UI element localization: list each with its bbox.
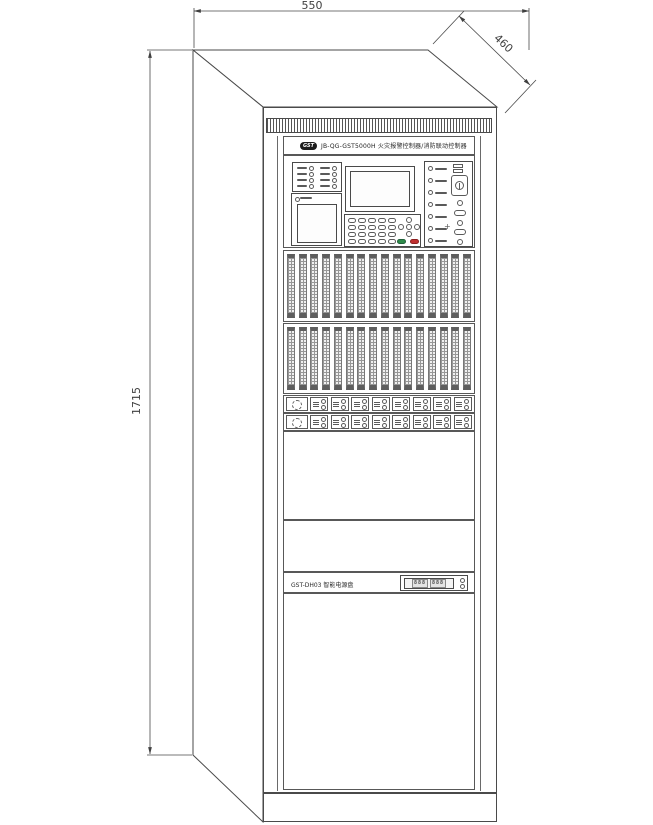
relay-terminal-lines — [333, 420, 339, 425]
led-dot — [309, 184, 314, 189]
enter-button — [406, 224, 412, 230]
terminal-strip — [428, 327, 436, 390]
depth-dimension-label: 460 — [491, 32, 515, 56]
led-label-bar — [435, 216, 447, 218]
lcd-frame — [345, 166, 415, 212]
loop-card-module — [357, 327, 377, 390]
arrow-right-button — [414, 224, 420, 230]
loop-card-module — [381, 254, 401, 318]
printer-slot — [453, 164, 463, 168]
power-display-window: 888 888 — [404, 578, 454, 589]
terminal-strip — [463, 254, 471, 318]
led-label-bar — [320, 185, 330, 187]
cabinet-technical-drawing: 550 460 1715 GST JB-QG-GST5000H 火灾报警控制器/… — [0, 0, 653, 825]
loop-card-module — [451, 327, 471, 390]
terminal-strip — [287, 327, 295, 390]
extension-line — [505, 80, 536, 113]
led-indicator-cell — [320, 166, 337, 170]
terminal-strip — [463, 327, 471, 390]
blank-panel-upper — [283, 431, 475, 520]
arrow-up-button — [406, 217, 412, 223]
keypad-grid — [348, 218, 396, 244]
led-indicator-cell — [297, 172, 314, 176]
keypad-key — [358, 232, 366, 237]
sounder-icon — [292, 418, 302, 428]
relay-module — [433, 397, 451, 411]
reset-button — [457, 220, 463, 226]
led-dot — [428, 202, 433, 207]
terminal-strip — [334, 254, 342, 318]
keypad-key — [388, 239, 396, 244]
relay-module — [310, 415, 328, 429]
terminal-strip — [451, 254, 459, 318]
led-dot — [332, 184, 337, 189]
loop-card-module — [357, 254, 377, 318]
terminal-strip — [299, 254, 307, 318]
mute-button — [457, 200, 463, 206]
keypad-key — [388, 218, 396, 223]
status-led-row — [428, 238, 447, 243]
relay-led-pair — [464, 417, 469, 428]
relay-terminal-lines — [395, 420, 401, 425]
loop-card-module — [428, 327, 448, 390]
relay-terminal-lines — [354, 420, 360, 425]
relay-module — [372, 397, 390, 411]
arrow-left-button — [398, 224, 404, 230]
terminal-strip — [440, 254, 448, 318]
relay-terminal-lines — [456, 420, 462, 425]
relay-module — [454, 397, 472, 411]
terminal-strip — [346, 327, 354, 390]
terminal-strip — [404, 254, 412, 318]
test-button — [457, 239, 463, 245]
status-controls-panel: + — [424, 161, 473, 247]
power-buttons — [460, 578, 465, 589]
relay-terminal-lines — [374, 402, 380, 407]
keypad-key — [378, 225, 386, 230]
model-title: JB-QG-GST5000H 火灾报警控制器/消防联动控制器 — [321, 141, 467, 150]
power-unit-label: GST-DH03 智能电源盘 — [291, 580, 353, 589]
led-dot — [428, 166, 433, 171]
terminal-strip — [310, 254, 318, 318]
status-led-row — [428, 178, 447, 183]
led-indicator-cell — [297, 166, 314, 170]
led-label-bar — [435, 204, 447, 206]
relay-led-pair — [464, 399, 469, 410]
led-label-bar — [435, 180, 447, 182]
relay-module — [351, 397, 369, 411]
fire-display-screen — [297, 204, 337, 243]
terminal-strip — [428, 254, 436, 318]
loop-card-module — [334, 254, 354, 318]
loop-card-module — [381, 327, 401, 390]
relay-led-pair — [341, 399, 346, 410]
door-frame-line-right — [480, 136, 481, 791]
terminal-strip — [393, 327, 401, 390]
lcd-screen — [350, 171, 410, 207]
led-indicator-cell — [320, 178, 337, 182]
relay-led-pair — [362, 417, 367, 428]
current-readout: 888 — [430, 579, 446, 588]
led-label-bar — [320, 167, 330, 169]
label-bar — [300, 197, 312, 199]
led-dot — [309, 166, 314, 171]
relay-led-pair — [403, 417, 408, 428]
relay-led-pair — [423, 399, 428, 410]
blank-panel-lower — [283, 520, 475, 572]
loop-card-row-2 — [283, 323, 475, 394]
terminal-strip — [310, 327, 318, 390]
terminal-strip — [416, 254, 424, 318]
terminal-strip — [369, 327, 377, 390]
relay-terminal-lines — [395, 402, 401, 407]
loop-card-module — [404, 254, 424, 318]
arrow-down-button — [406, 231, 412, 237]
voltage-readout: 888 — [412, 579, 428, 588]
led-label-bar — [435, 168, 447, 170]
keypad-key — [388, 232, 396, 237]
terminal-strip — [393, 254, 401, 318]
start-key-green — [397, 239, 406, 244]
loop-card-row-1 — [283, 250, 475, 322]
relay-module — [331, 397, 349, 411]
power-display-unit: 888 888 — [400, 575, 468, 591]
terminal-strip — [287, 254, 295, 318]
terminal-strip — [404, 327, 412, 390]
cabinet-side-face — [193, 50, 263, 822]
relay-led-pair — [341, 417, 346, 428]
gst-logo: GST — [300, 142, 317, 150]
led-indicator-cell — [297, 184, 314, 188]
relay-strip — [310, 415, 472, 429]
terminal-strip — [357, 327, 365, 390]
loop-card-module — [287, 327, 307, 390]
relay-terminal-lines — [415, 420, 421, 425]
keypad-key — [348, 239, 356, 244]
printer-slot — [453, 169, 463, 173]
terminal-strip — [357, 254, 365, 318]
relay-led-pair — [321, 399, 326, 410]
status-led-row — [428, 166, 447, 171]
keypad-key — [378, 239, 386, 244]
terminal-strip — [440, 327, 448, 390]
keypad-key — [378, 218, 386, 223]
keypad-key — [358, 239, 366, 244]
relay-module — [331, 415, 349, 429]
sounder-module — [286, 415, 308, 429]
status-led-row — [428, 214, 447, 219]
led-label-bar — [435, 240, 447, 242]
relay-module — [413, 397, 431, 411]
plus-mark-icon: + — [444, 222, 451, 231]
relay-terminal-lines — [415, 402, 421, 407]
led-dot — [309, 172, 314, 177]
fire-display-subpanel — [291, 193, 342, 246]
power-supply-panel: GST-DH03 智能电源盘 888 888 — [283, 572, 475, 593]
relay-module — [351, 415, 369, 429]
keypad-panel — [344, 214, 421, 247]
loop-card-module — [334, 327, 354, 390]
base-plinth — [263, 793, 497, 822]
keypad-key — [368, 232, 376, 237]
module-row-2 — [283, 413, 475, 431]
height-dimension-label: 1715 — [130, 387, 143, 415]
loop-card-module — [310, 254, 330, 318]
keypad-key — [358, 218, 366, 223]
led-indicator-cell — [320, 172, 337, 176]
terminal-strip — [381, 327, 389, 390]
led-label-bar — [297, 173, 307, 175]
status-led-column — [428, 166, 447, 250]
keypad-key — [348, 232, 356, 237]
led-dot — [332, 178, 337, 183]
keypad-key — [348, 218, 356, 223]
relay-terminal-lines — [313, 420, 319, 425]
relay-led-pair — [382, 399, 387, 410]
relay-led-pair — [403, 399, 408, 410]
terminal-strip — [346, 254, 354, 318]
keypad-key — [388, 225, 396, 230]
relay-terminal-lines — [354, 402, 360, 407]
keyhole-slot — [459, 183, 460, 189]
led-indicator-cell — [297, 178, 314, 182]
relay-module — [413, 415, 431, 429]
lower-door-panel — [283, 593, 475, 790]
led-label-bar — [297, 167, 307, 169]
keypad-key — [368, 225, 376, 230]
loop-card-module — [428, 254, 448, 318]
led-dot — [309, 178, 314, 183]
loop-card-module — [310, 327, 330, 390]
status-led-row — [428, 190, 447, 195]
status-led-row — [428, 202, 447, 207]
relay-terminal-lines — [436, 402, 442, 407]
relay-terminal-lines — [333, 402, 339, 407]
terminal-strip — [334, 327, 342, 390]
depth-dimension-line — [459, 16, 530, 85]
led-dot — [332, 172, 337, 177]
relay-module — [372, 415, 390, 429]
terminal-strip — [369, 254, 377, 318]
loop-card-module — [404, 327, 424, 390]
relay-led-pair — [423, 417, 428, 428]
keypad-key — [368, 218, 376, 223]
controls-column: + — [450, 164, 471, 246]
keypad-key — [378, 232, 386, 237]
relay-terminal-lines — [436, 420, 442, 425]
key-switch — [451, 175, 468, 196]
loop-card-module — [287, 254, 307, 318]
cpu-main-panel: + — [283, 155, 475, 248]
led-label-bar — [320, 179, 330, 181]
relay-terminal-lines — [374, 420, 380, 425]
led-dot — [428, 238, 433, 243]
terminal-strip — [451, 327, 459, 390]
relay-led-pair — [444, 399, 449, 410]
function-key — [454, 210, 466, 216]
width-dimension-label: 550 — [302, 0, 323, 12]
led-label-bar — [320, 173, 330, 175]
terminal-strip — [381, 254, 389, 318]
relay-module — [392, 415, 410, 429]
led-indicator-cell — [320, 184, 337, 188]
loop-card-module — [451, 254, 471, 318]
relay-terminal-lines — [313, 402, 319, 407]
led-label-bar — [297, 179, 307, 181]
terminal-strip — [322, 254, 330, 318]
dpad-cluster — [397, 216, 421, 246]
led-label-bar — [435, 192, 447, 194]
relay-strip — [310, 397, 472, 411]
led-dot — [428, 226, 433, 231]
relay-led-pair — [444, 417, 449, 428]
alarm-led-block — [292, 162, 342, 192]
keypad-key — [358, 225, 366, 230]
relay-module — [454, 415, 472, 429]
keypad-key — [368, 239, 376, 244]
door-frame-line-left — [277, 136, 278, 791]
vent-grille — [266, 118, 492, 133]
led-dot — [428, 190, 433, 195]
relay-led-pair — [382, 417, 387, 428]
sounder-module — [286, 397, 308, 411]
terminal-strip — [416, 327, 424, 390]
relay-module — [433, 415, 451, 429]
keypad-key — [348, 225, 356, 230]
relay-module — [392, 397, 410, 411]
function-key — [454, 229, 466, 235]
relay-module — [310, 397, 328, 411]
header-bar: GST JB-QG-GST5000H 火灾报警控制器/消防联动控制器 — [283, 136, 475, 155]
relay-led-pair — [321, 417, 326, 428]
terminal-strip — [299, 327, 307, 390]
stop-key-red — [410, 239, 419, 244]
relay-terminal-lines — [456, 402, 462, 407]
led-dot — [428, 214, 433, 219]
led-dot — [332, 166, 337, 171]
module-row-1 — [283, 395, 475, 413]
led-dot — [428, 178, 433, 183]
relay-led-pair — [362, 399, 367, 410]
terminal-strip — [322, 327, 330, 390]
led-label-bar — [297, 185, 307, 187]
sounder-icon — [292, 400, 302, 410]
